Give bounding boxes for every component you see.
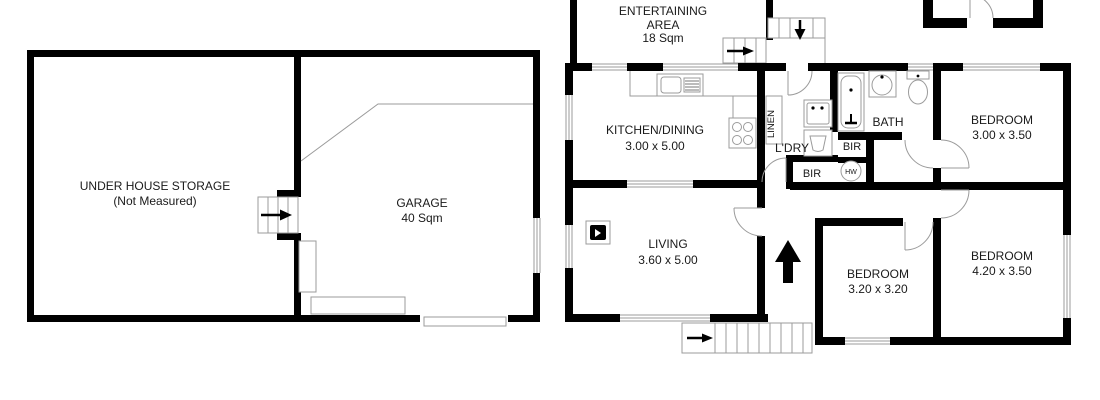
wall-segment [757,236,765,314]
wall-segment [570,0,577,63]
servery-opening [627,181,693,187]
floorplan-drawing: UNDER HOUSE STORAGE (Not Measured) GARAG… [0,0,1100,400]
wall-segment [790,182,941,190]
room-dimensions: 40 Sqm [401,211,442,225]
window [663,64,738,70]
wall-segment [533,50,540,218]
wall-segment [565,314,620,322]
room-bedroom-3: BEDROOM 3.20 x 3.20 [847,267,909,296]
room-dimensions: 4.20 x 3.50 [972,264,1032,278]
laundry-label: L'DRY [775,141,809,155]
laundry-door [762,158,786,182]
room-area: 18 Sqm [642,31,683,45]
bedroom1-door [941,140,969,168]
left-plan: UNDER HOUSE STORAGE (Not Measured) GARAG… [27,50,540,326]
wall-segment [866,132,874,190]
wall-segment [933,63,963,71]
room-under-house-storage: UNDER HOUSE STORAGE (Not Measured) [80,179,230,208]
wall-segment [933,218,941,345]
room-dimensions: 3.60 x 5.00 [638,253,698,267]
room-label: KITCHEN/DINING [606,123,704,137]
room-dimensions: 3.20 x 3.20 [848,282,908,296]
window [963,64,1040,70]
room-living: LIVING 3.60 x 5.00 [638,237,698,267]
bath-door [905,140,933,168]
right-plan: HW ENTERTAINING [565,0,1071,353]
garage-door [424,317,506,326]
wall-segment [27,50,540,57]
wall-segment [277,190,297,197]
garage-roofline [301,104,533,161]
bedroom3-door [905,222,933,250]
wall-segment [757,71,765,180]
wall-segment [757,188,765,208]
shed-structure [923,0,1043,28]
window [908,64,933,70]
window [592,64,627,70]
shed-door [970,0,993,18]
wall-segment [533,273,540,322]
room-bedroom-2: BEDROOM 4.20 x 3.50 [971,249,1033,278]
wall-segment [738,63,786,71]
room-bedroom-1: BEDROOM 3.00 x 3.50 [971,113,1033,142]
wall-segment [294,50,301,197]
linen-label: LINEN [766,110,777,138]
window [1064,235,1070,318]
garage-window [534,218,540,273]
room-dimensions: 3.00 x 5.00 [625,139,685,153]
window [566,225,572,268]
wall-segment [565,63,573,95]
fireplace-icon [586,221,610,244]
wall-segment [565,268,573,322]
wall-segment [933,168,941,190]
wall-segment [277,233,297,240]
storage-stair [258,197,298,233]
room-entertaining-area: ENTERTAINING AREA 18 Sqm [619,4,707,45]
wall-segment [786,155,793,189]
room-label: ENTERTAINING [619,4,707,18]
room-sublabel: (Not Measured) [113,194,196,208]
kitchen-sink-icon [657,74,703,96]
room-label: AREA [647,18,680,32]
window [845,338,890,344]
room-label: BEDROOM [847,267,909,281]
window [620,315,710,321]
garage-shelf [299,241,316,292]
toilet-icon [907,71,929,104]
floorplan-page: UNDER HOUSE STORAGE (Not Measured) GARAG… [0,0,1100,400]
wall-segment [941,182,1063,190]
deck-stair-north [768,18,825,63]
wall-segment [890,337,1071,345]
bedroom2-door [941,190,969,218]
wall-segment [933,71,941,140]
room-label: BEDROOM [971,249,1033,263]
wall-segment [27,50,34,322]
wall-segment [27,315,420,322]
room-dimensions: 3.00 x 3.50 [972,128,1032,142]
front-stair [682,323,812,353]
deck-stair-east [723,38,766,63]
bath-label: BATH [872,115,903,129]
bathtub-icon [838,73,864,131]
wall-segment [710,314,768,322]
wall-segment [808,63,908,71]
cooktop-icon [729,118,756,148]
room-label: UNDER HOUSE STORAGE [80,179,230,193]
bir-upper-label: BIR [843,141,861,153]
garage-workbench [311,297,405,314]
entry-arrow-icon [775,240,801,283]
wall-segment [815,218,903,226]
hot-water-unit: HW [841,161,861,181]
wall-segment [565,180,627,188]
room-kitchen-dining: KITCHEN/DINING 3.00 x 5.00 [606,123,704,153]
wall-segment [627,63,663,71]
room-label: BEDROOM [971,113,1033,127]
living-door [734,208,762,236]
wall-segment [874,132,902,140]
hw-label: HW [845,169,857,176]
window [566,95,572,140]
laundry-tub-icon [804,100,832,127]
front-door [788,71,812,95]
wall-segment [1063,63,1071,235]
room-label: GARAGE [396,196,447,210]
room-garage: GARAGE 40 Sqm [396,196,447,225]
room-label: LIVING [648,237,687,251]
wall-segment [815,218,823,345]
basin-icon [869,71,896,97]
wall-segment [693,180,765,188]
bir-lower-label: BIR [803,168,821,180]
